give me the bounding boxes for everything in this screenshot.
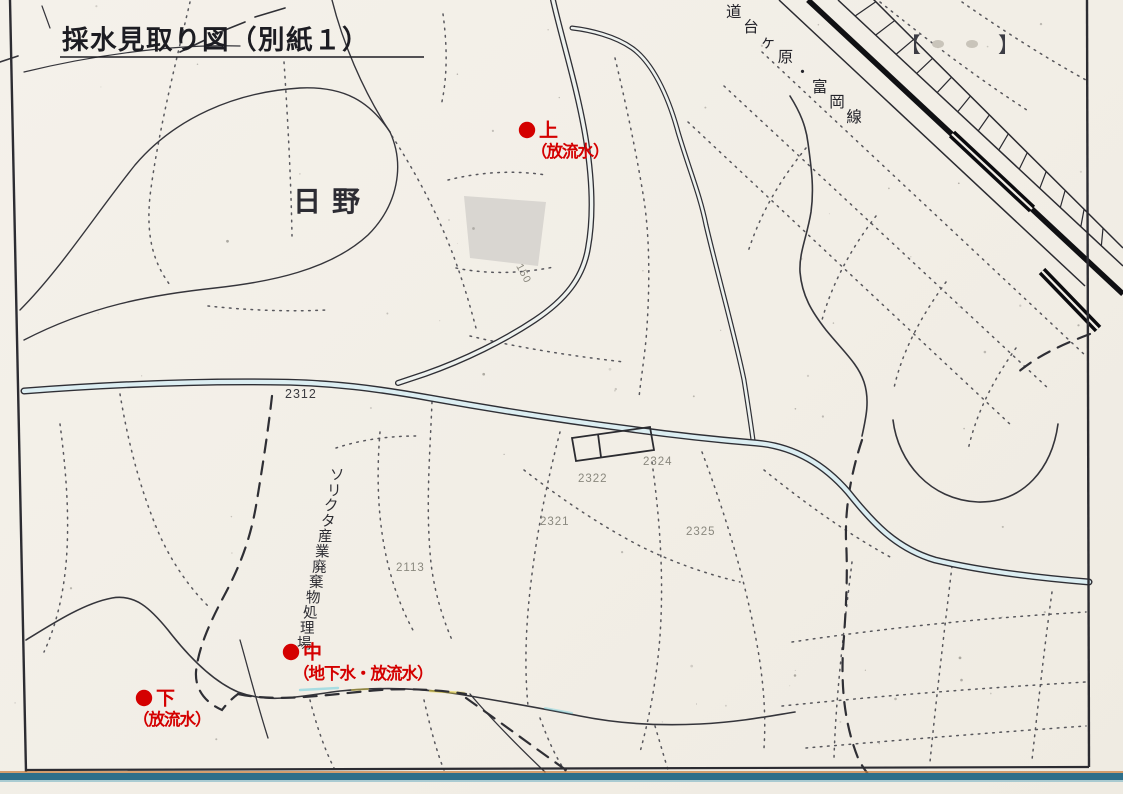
stream-lines: [26, 597, 795, 772]
noise-speck: [299, 173, 300, 174]
parcel-number-2312: 2312: [285, 387, 317, 401]
railway-tick: [937, 77, 951, 92]
sampling-dot-lower: [136, 690, 152, 706]
facility-label-char: 業: [315, 544, 330, 561]
facility-label-char: ソ: [330, 468, 345, 484]
road-top: [398, 0, 592, 383]
noise-speck: [100, 86, 101, 87]
noise-speck: [215, 738, 217, 740]
noise-speck: [95, 5, 97, 7]
noise-speck: [226, 240, 229, 243]
noise-speck: [879, 743, 880, 744]
noise-speck: [693, 395, 695, 397]
dotted-parcel-lines: [44, 2, 1086, 772]
sampling-detail-lower: （放流水）: [133, 709, 211, 729]
noise-speck: [370, 407, 372, 409]
parcel-numbers: 231223242322232123252113150: [285, 262, 716, 574]
railway-label-char: ヶ: [760, 34, 776, 51]
noise-speck: [615, 388, 617, 390]
noise-speck: [960, 679, 963, 682]
noise-speck: [482, 373, 485, 376]
noise-speck: [894, 698, 897, 701]
noise-speck: [833, 322, 834, 323]
bracket-right: 】: [998, 33, 1019, 57]
noise-speck: [457, 73, 458, 74]
facility-label-char: 廃: [312, 558, 327, 576]
footpath-loop: [893, 420, 1058, 502]
noise-speck: [958, 182, 960, 184]
noise-speck: [959, 657, 962, 660]
footpath-right: [790, 96, 867, 436]
noise-speck: [1002, 526, 1004, 528]
noise-speck: [621, 551, 623, 553]
noise-speck: [1019, 305, 1021, 307]
noise-speck: [822, 415, 824, 417]
sampling-dot-middle: [283, 644, 299, 660]
noise-speck: [690, 665, 693, 668]
parcel-number-2324: 2324: [643, 456, 673, 468]
railway-tick: [1060, 190, 1065, 207]
sampling-detail-middle: （地下水・放流水）: [293, 663, 433, 683]
noise-speck: [231, 552, 233, 554]
parcel-number-2113: 2113: [396, 562, 425, 574]
facility-label-char: リ: [327, 483, 342, 499]
noise-speck: [795, 670, 796, 671]
noise-speck: [1080, 171, 1082, 173]
facility-label-char: タ: [321, 513, 336, 530]
noise-speck: [865, 670, 866, 671]
noise-speck: [439, 320, 440, 321]
railway-tick: [958, 96, 971, 112]
noise-speck: [609, 368, 612, 371]
noise-speck: [958, 306, 959, 307]
bracket-left: 【: [900, 33, 921, 57]
road-main: [24, 382, 1089, 582]
sampling-name-middle: 中: [303, 641, 322, 664]
railway-tick: [917, 58, 933, 73]
noise-speck: [14, 702, 16, 704]
bracket-smudges: [932, 40, 978, 48]
sampling-location-map: 採水見取り図（別紙１） 日野 【 】 道台ヶ原・富岡線 ソリクタ産業廃棄物処理場…: [0, 0, 1123, 794]
railway-tick: [876, 21, 895, 36]
noise-speck: [807, 375, 809, 377]
noise-speck: [1077, 324, 1079, 326]
noise-speck: [1040, 23, 1042, 25]
parcel-number-150: 150: [513, 262, 533, 286]
facility-label-char: ク: [324, 498, 339, 515]
railway-tick: [1101, 228, 1103, 246]
noise-speck: [795, 408, 797, 410]
noise-speck: [472, 227, 475, 230]
noise-speck: [559, 97, 560, 98]
noise-speck: [910, 256, 911, 257]
noise-speck: [642, 270, 644, 272]
scan-edge-band: [0, 771, 1123, 782]
scanned-map-page: 採水見取り図（別紙１） 日野 【 】 道台ヶ原・富岡線 ソリクタ産業廃棄物処理場…: [0, 0, 1123, 794]
noise-speck: [141, 375, 142, 376]
facility-label-char: 棄: [309, 573, 324, 591]
map-title: 採水見取り図（別紙１）: [62, 25, 370, 55]
railway-label-char: 台: [743, 18, 759, 36]
noise-speck: [794, 674, 797, 677]
noise-speck: [1044, 611, 1046, 613]
railway-tick: [999, 134, 1009, 150]
noise-speck: [457, 243, 458, 244]
railway-label-char: 原: [778, 49, 794, 66]
noise-speck: [448, 219, 450, 221]
sampling-name-lower: 下: [156, 689, 175, 710]
noise-speck: [704, 107, 706, 109]
railway-label-char: 線: [846, 108, 862, 126]
noise-speck: [800, 258, 802, 260]
noise-speck: [696, 703, 697, 704]
noise-speck: [197, 63, 199, 65]
scan-noise: [14, 5, 1082, 744]
facility-label-char: 理: [300, 621, 315, 637]
noise-speck: [987, 46, 989, 48]
noise-speck: [725, 705, 727, 707]
noise-speck: [789, 685, 790, 686]
railway-line: [779, 0, 1123, 329]
sampling-point-upper: 上（放流水）: [519, 120, 609, 162]
railway-label-char: ・: [795, 64, 811, 81]
noise-speck: [98, 313, 99, 314]
noise-speck: [1001, 616, 1002, 617]
noise-speck: [839, 721, 841, 723]
roads: [24, 0, 1089, 582]
facility-label-char: 処: [303, 605, 318, 622]
place-label-hino: 日野: [293, 187, 371, 218]
railway-label-char: 富: [812, 78, 828, 96]
noise-speck: [990, 693, 992, 695]
railway-tick: [1019, 153, 1027, 170]
railway-ticks: [855, 2, 1103, 246]
noise-speck: [154, 525, 157, 528]
railway-label-char: 岡: [829, 94, 845, 111]
railway-tick: [855, 2, 876, 16]
noise-speck: [548, 29, 549, 30]
noise-speck: [492, 130, 494, 132]
sampling-dot-upper: [519, 122, 535, 138]
scan-gray-patch: [464, 196, 546, 266]
scan-color-artifacts: [300, 688, 572, 713]
parcel-number-2325: 2325: [686, 526, 716, 538]
noise-speck: [231, 516, 232, 517]
railway-label-char: 道: [726, 3, 742, 21]
noise-speck: [829, 213, 830, 214]
noise-speck: [963, 428, 965, 430]
parcel-number-2321: 2321: [540, 516, 570, 528]
noise-speck: [818, 24, 820, 26]
sampling-point-middle: 中（地下水・放流水）: [283, 641, 433, 684]
noise-speck: [984, 351, 987, 354]
facility-label-char: 物: [306, 589, 321, 606]
noise-speck: [503, 454, 504, 455]
noise-speck: [70, 587, 72, 589]
noise-speck: [888, 188, 890, 190]
railway-tick: [978, 115, 989, 131]
railway-tick: [1040, 171, 1046, 188]
parcel-number-2322: 2322: [578, 473, 608, 485]
facility-name-label: ソリクタ産業廃棄物処理場: [297, 468, 345, 652]
sampling-point-lower: 下（放流水）: [133, 689, 211, 730]
noise-speck: [720, 330, 721, 331]
noise-speck: [662, 721, 663, 722]
sampling-detail-upper: （放流水）: [531, 141, 609, 161]
noise-speck: [386, 313, 388, 315]
railway-tick: [1081, 209, 1084, 226]
railway-line-label: 道台ヶ原・富岡線: [726, 3, 862, 126]
sampling-name-upper: 上: [539, 120, 558, 142]
facility-label-char: 産: [318, 528, 333, 545]
noise-speck: [846, 583, 848, 585]
